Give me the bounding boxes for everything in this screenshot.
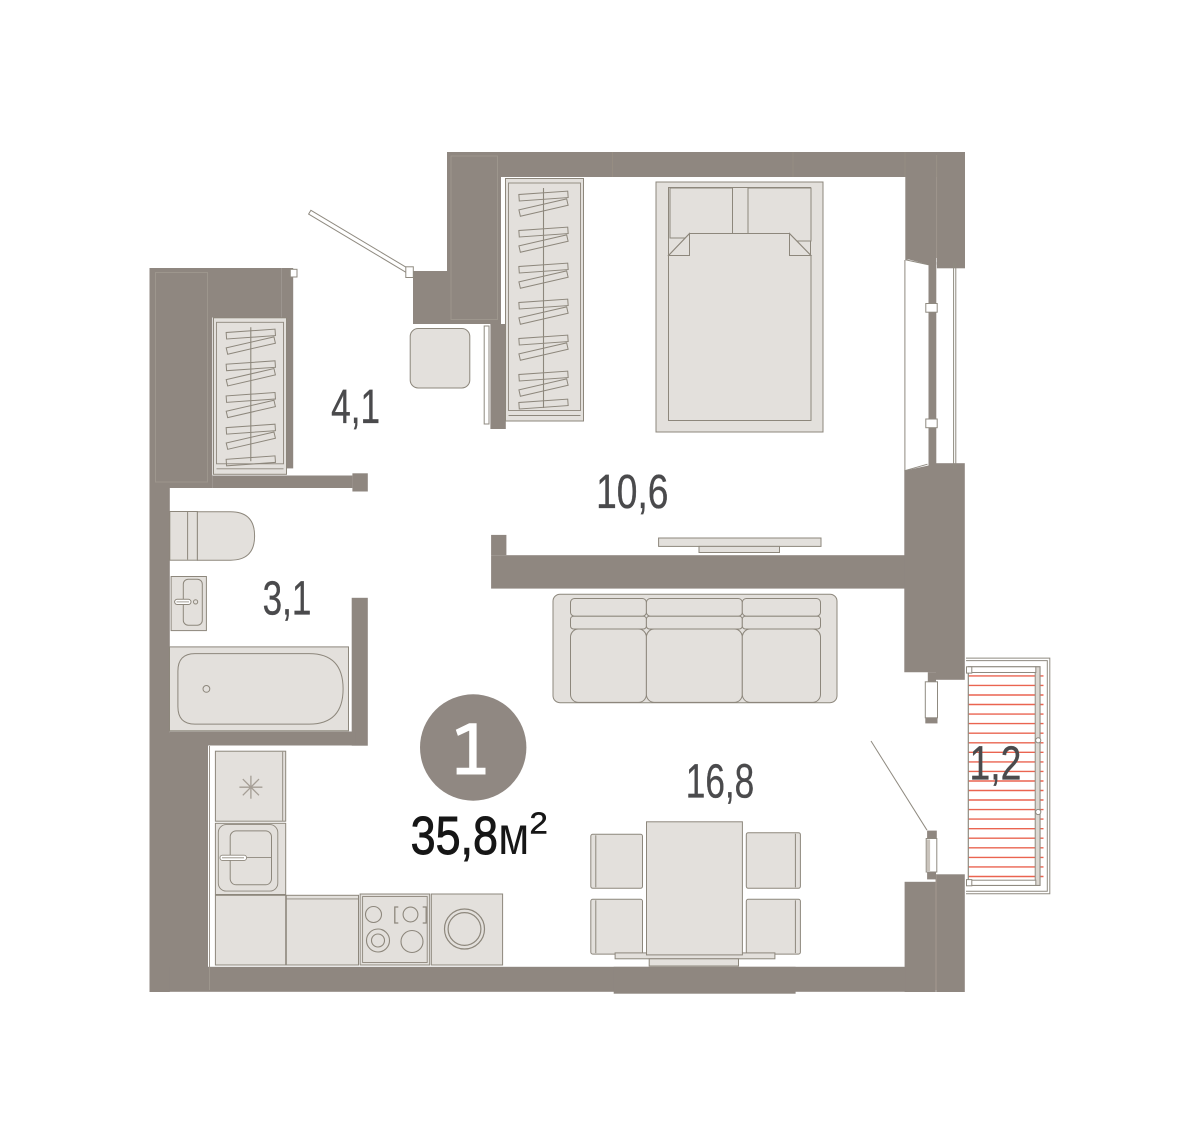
svg-text:4,1: 4,1 xyxy=(331,381,380,434)
svg-text:м: м xyxy=(498,806,529,866)
svg-text:16,8: 16,8 xyxy=(686,756,755,809)
svg-text:1,2: 1,2 xyxy=(970,738,1022,791)
svg-text:2: 2 xyxy=(530,806,548,841)
svg-text:10,6: 10,6 xyxy=(596,466,668,519)
svg-text:3,1: 3,1 xyxy=(263,572,312,625)
svg-text:35,8: 35,8 xyxy=(411,806,498,866)
